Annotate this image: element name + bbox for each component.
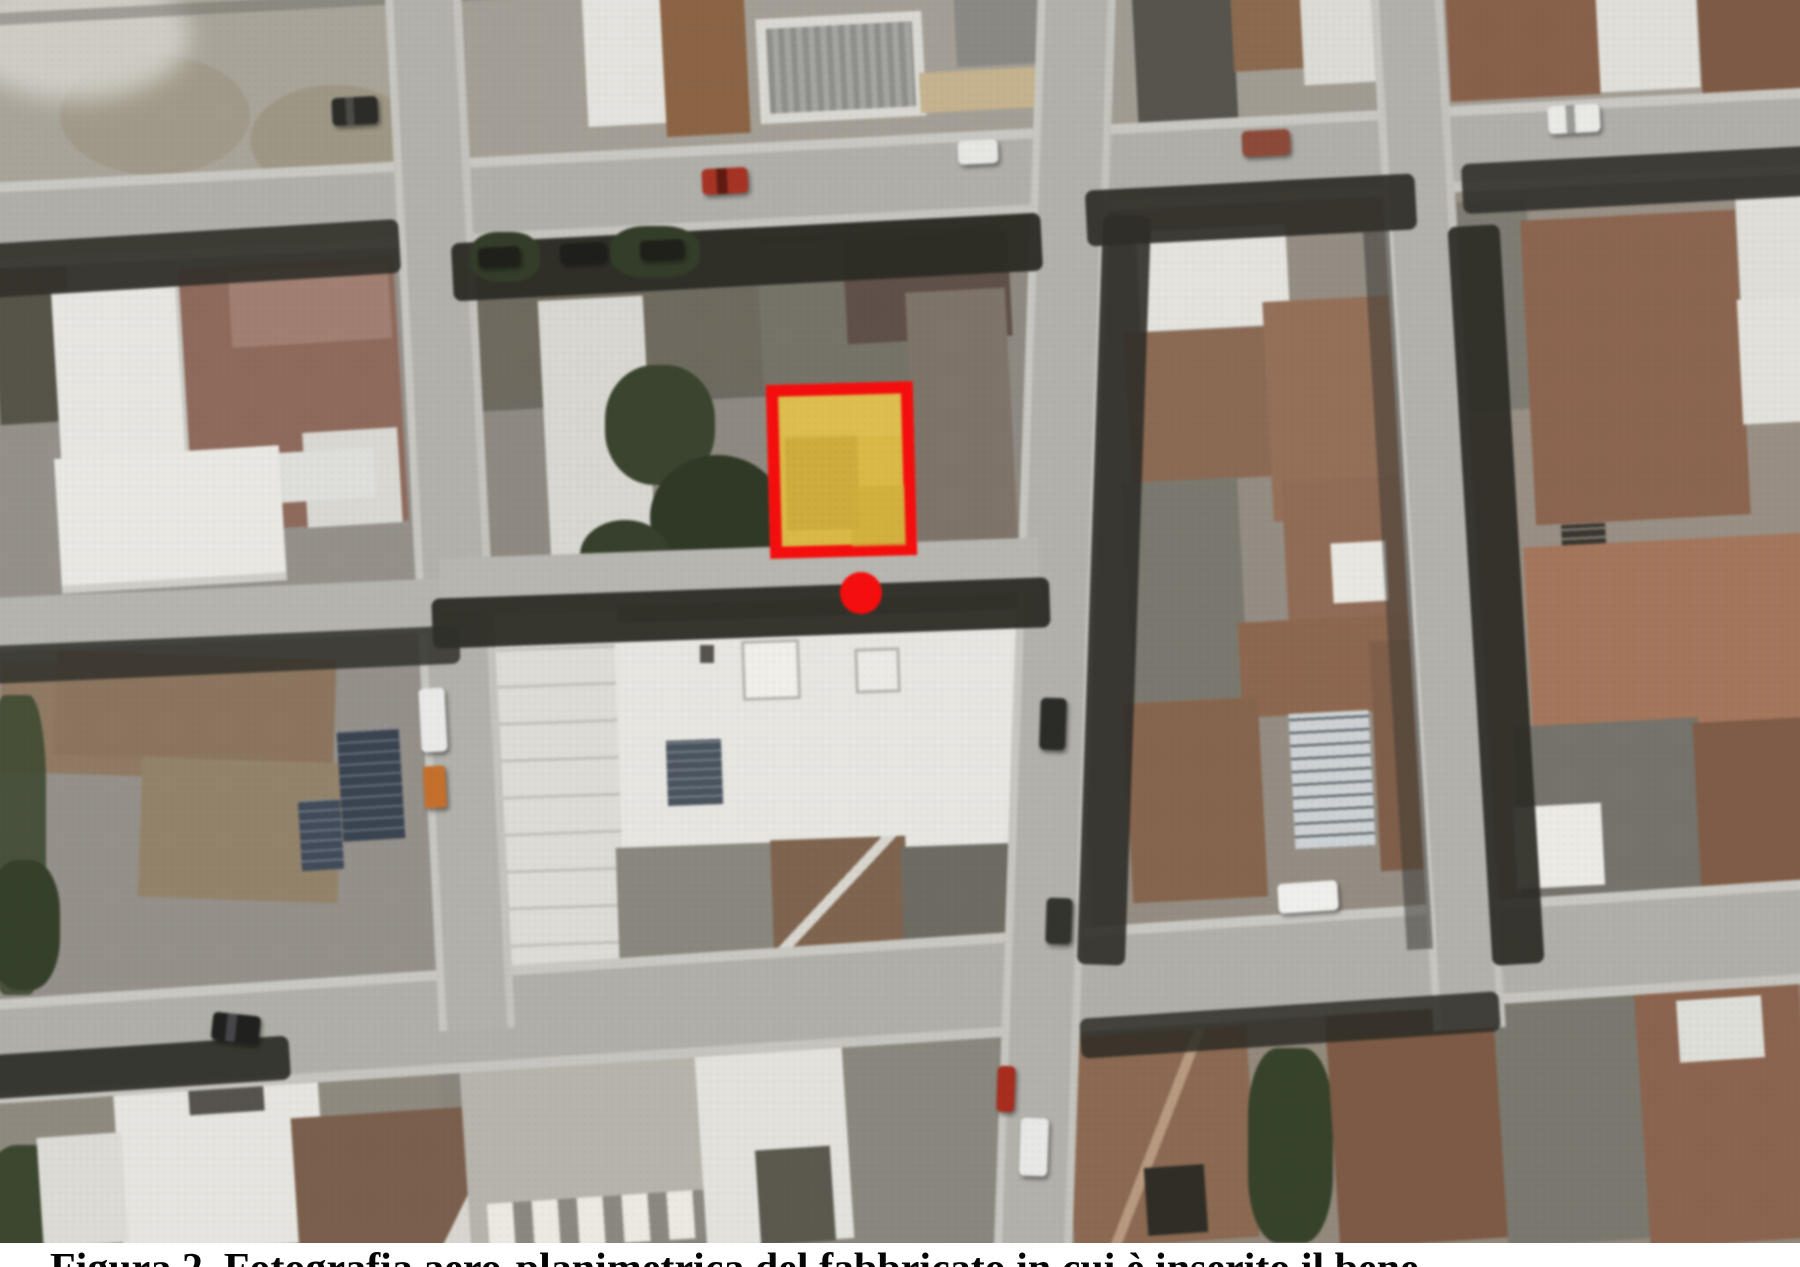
- ribbed-roof: [766, 21, 916, 114]
- car-white: [1547, 104, 1600, 135]
- skylight-grid: [666, 739, 723, 806]
- aerial-photo: [0, 0, 1800, 1243]
- building-roof: [1523, 533, 1800, 732]
- car-red: [701, 167, 748, 195]
- courtyard-opening: [1144, 1164, 1208, 1236]
- building-roof: [1230, 0, 1306, 72]
- building-roof: [36, 1132, 128, 1243]
- parcel-fill-patch: [780, 395, 901, 438]
- aerial-scene: [0, 0, 1800, 1243]
- parcel-fill-patch: [785, 433, 859, 531]
- car: [957, 139, 998, 165]
- building-roof: [279, 447, 377, 503]
- building-roof: [770, 836, 909, 949]
- rooftop-vent: [700, 645, 714, 663]
- rooftop-structure: [741, 639, 801, 701]
- building-roof: [1123, 697, 1268, 904]
- building-roof: [659, 0, 751, 137]
- building-roof: [1676, 995, 1765, 1062]
- skylight-grid: [1289, 710, 1376, 849]
- building-roof: [582, 0, 669, 127]
- car: [1045, 898, 1073, 945]
- van-white: [1277, 880, 1339, 914]
- car-red: [996, 1066, 1016, 1113]
- building-roof: [1737, 296, 1800, 424]
- solar-panel-array: [298, 799, 344, 871]
- building-roof: [1132, 0, 1239, 123]
- parcel-fill-patch: [850, 485, 906, 546]
- building-roof: [1492, 983, 1654, 1243]
- building-roof: [919, 67, 1041, 113]
- building-roof: [953, 0, 1047, 67]
- building-roof: [1735, 193, 1800, 307]
- vegetation: [0, 860, 60, 990]
- van-white: [418, 687, 447, 752]
- building-roof: [841, 1033, 1009, 1243]
- building-roof: [905, 288, 1019, 563]
- location-marker-dot: [840, 572, 882, 614]
- car: [331, 96, 378, 126]
- car-white: [1019, 1118, 1049, 1177]
- car: [1241, 129, 1290, 157]
- building-roof: [54, 445, 287, 593]
- car: [211, 1012, 262, 1045]
- dumpster-orange: [423, 765, 447, 808]
- figure-page: Figura 2. Fotografia aero-planimetrica d…: [0, 0, 1800, 1267]
- parked-car: [640, 239, 685, 261]
- building-roof: [1595, 0, 1700, 93]
- parked-car: [560, 242, 607, 264]
- caption-band: Figura 2. Fotografia aero-planimetrica d…: [0, 1243, 1800, 1267]
- rooftop-structure: [1330, 541, 1388, 604]
- building-roof: [1520, 210, 1751, 526]
- highlighted-parcel: [766, 381, 918, 559]
- building-roof: [1445, 0, 1601, 102]
- figure-caption: Figura 2. Fotografia aero-planimetrica d…: [50, 1246, 1419, 1267]
- building-roof: [1122, 477, 1248, 703]
- vegetation: [1248, 1048, 1333, 1243]
- parked-car: [478, 246, 521, 268]
- building-roof: [755, 1146, 836, 1243]
- car: [1039, 698, 1067, 751]
- solar-panel-array: [337, 728, 406, 842]
- rooftop-structure: [854, 647, 901, 694]
